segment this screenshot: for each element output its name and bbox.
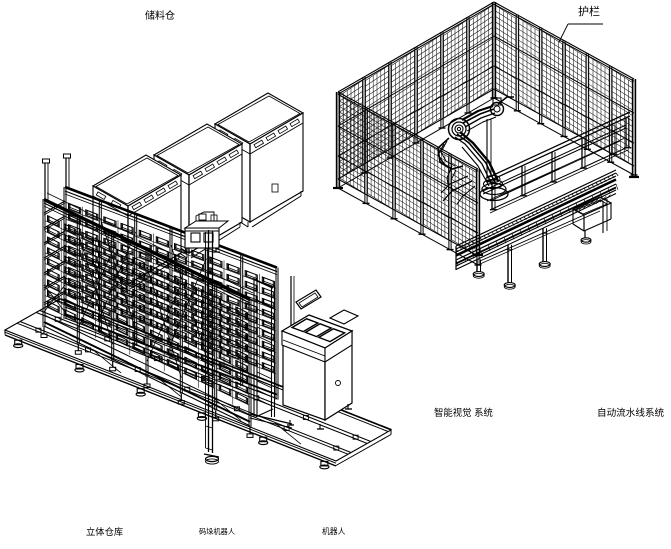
svg-text:智能视觉 系统: 智能视觉 系统 (434, 407, 493, 418)
svg-text:码垛机器人: 码垛机器人 (199, 527, 235, 536)
svg-text:机器人: 机器人 (322, 526, 346, 536)
svg-text:护栏: 护栏 (578, 4, 600, 18)
svg-text:自动流水线系统: 自动流水线系统 (597, 407, 665, 419)
svg-text:储料仓: 储料仓 (145, 9, 175, 22)
svg-text:立体仓库: 立体仓库 (86, 526, 123, 537)
